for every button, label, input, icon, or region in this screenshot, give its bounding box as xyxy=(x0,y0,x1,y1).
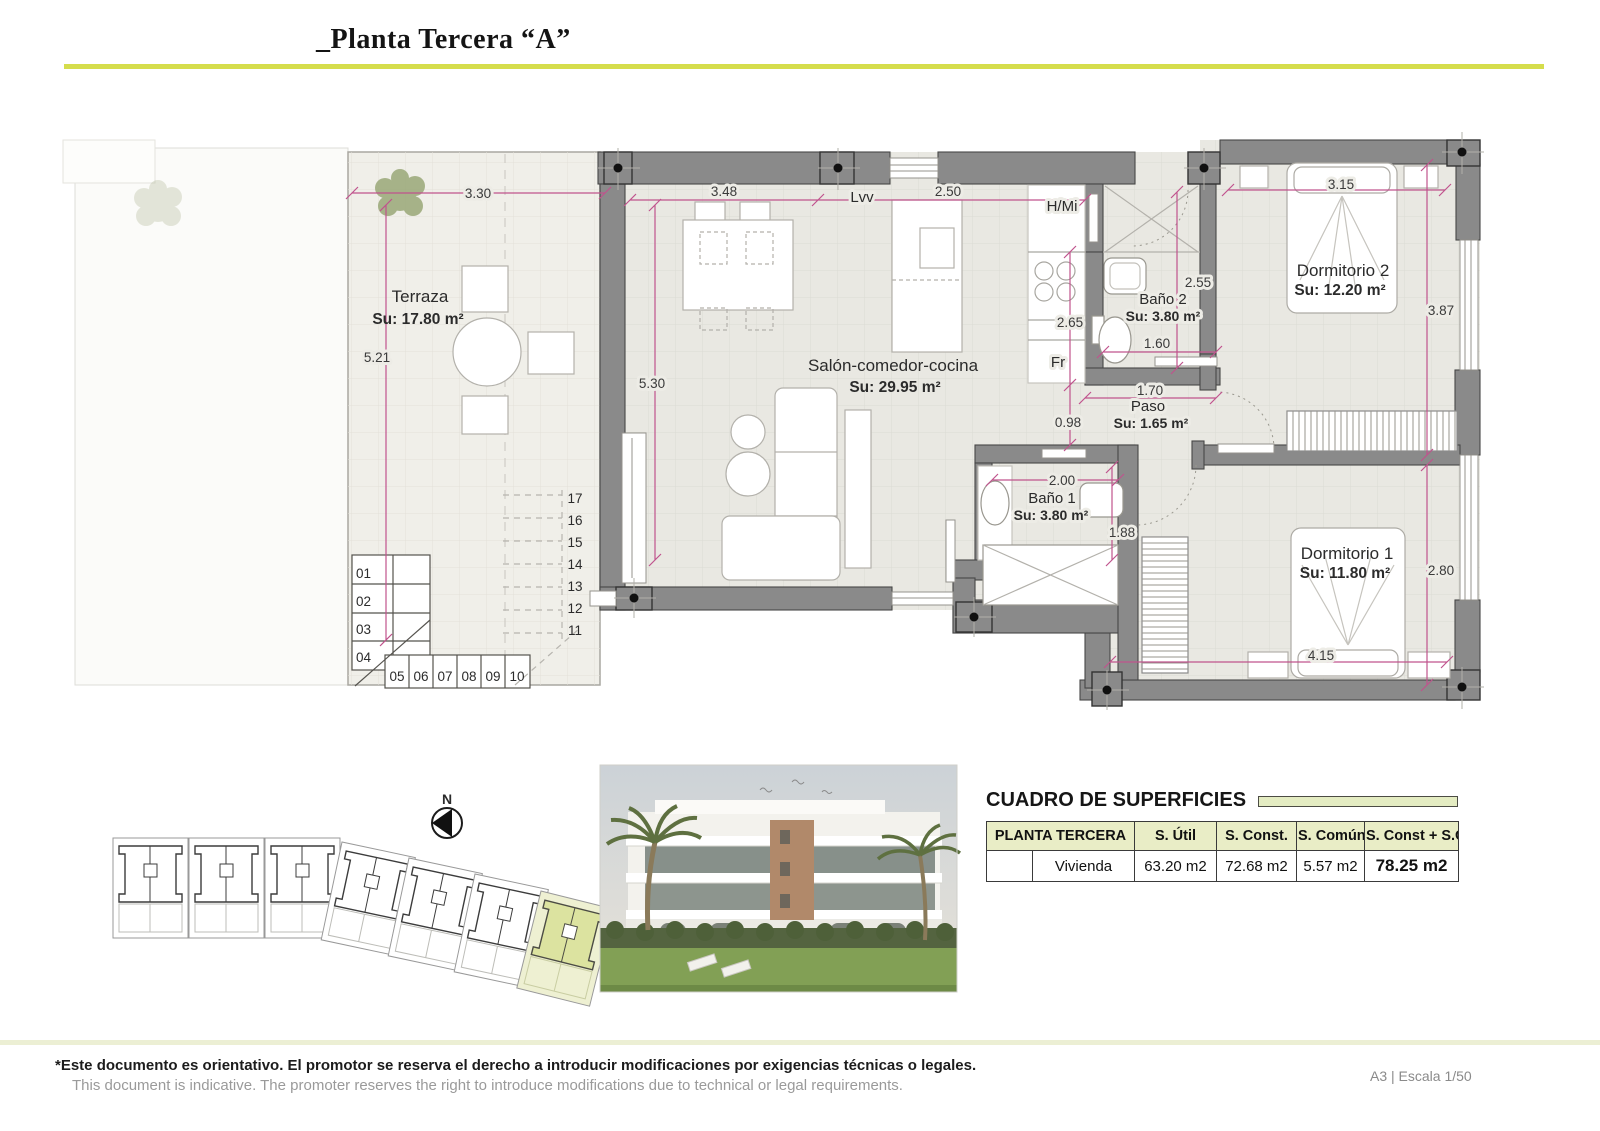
bano1-label: Baño 1 xyxy=(1028,490,1076,507)
empty-cell xyxy=(987,851,1033,882)
building-render-photo xyxy=(600,765,960,992)
stair-number: 01 xyxy=(356,566,371,581)
dorm2-area: Su: 12.20 m² xyxy=(1294,282,1385,299)
dim: 1.70 xyxy=(1137,383,1163,398)
col-header-comun: S. Común xyxy=(1297,822,1365,851)
dim: 1.60 xyxy=(1144,336,1170,351)
surfaces-panel: CUADRO DE SUPERFICIES PLANTA TERCERA S. … xyxy=(986,789,1458,882)
dim: 0.98 xyxy=(1055,415,1081,430)
dim: 5.21 xyxy=(364,350,390,365)
dim: 3.30 xyxy=(465,186,491,201)
stair-number: 14 xyxy=(567,557,583,572)
stair-number: 09 xyxy=(485,669,500,684)
dim: 5.30 xyxy=(639,376,665,391)
plan-sheet: _Planta Tercera “A” xyxy=(0,0,1600,1131)
terraza-label: Terraza xyxy=(392,287,449,306)
terraza-area: Su: 17.80 m² xyxy=(372,311,463,328)
fr-label: Fr xyxy=(1051,354,1065,371)
dim: 2.55 xyxy=(1185,275,1211,290)
disclaimer-en: This document is indicative. The promote… xyxy=(72,1077,903,1094)
stair-number: 16 xyxy=(567,513,582,528)
paso-area: Su: 1.65 m² xyxy=(1114,415,1189,431)
surfaces-table: PLANTA TERCERA S. Útil S. Const. S. Comú… xyxy=(986,821,1459,882)
dim: 3.15 xyxy=(1328,177,1354,192)
stair-number: 17 xyxy=(567,491,582,506)
col-header-util: S. Útil xyxy=(1135,822,1217,851)
dorm1-area: Su: 11.80 m² xyxy=(1300,565,1390,582)
surfaces-header-row: PLANTA TERCERA S. Útil S. Const. S. Comú… xyxy=(987,822,1459,851)
bano2-area: Su: 3.80 m² xyxy=(1126,308,1201,324)
site-unit xyxy=(113,838,188,938)
dim: 4.15 xyxy=(1308,648,1334,663)
floor-plan-drawing: Terraza Su: 17.80 m² Salón-comedor-cocin… xyxy=(0,0,1600,1131)
stair-number: 12 xyxy=(567,601,582,616)
surfaces-title-bar xyxy=(1258,796,1458,807)
comun-value: 5.57 m2 xyxy=(1297,851,1365,882)
disclaimer-es: *Este documento es orientativo. El promo… xyxy=(55,1057,976,1074)
paso-label: Paso xyxy=(1131,398,1165,415)
site-plan xyxy=(113,838,614,1006)
stair-number: 10 xyxy=(509,669,524,684)
dim: 2.00 xyxy=(1049,473,1075,488)
stair-number: 11 xyxy=(568,623,582,638)
row-label: Vivienda xyxy=(1033,851,1135,882)
dim: 3.87 xyxy=(1428,303,1454,318)
stair-number: 06 xyxy=(413,669,428,684)
salon-area: Su: 29.95 m² xyxy=(849,379,940,396)
const-value: 72.68 m2 xyxy=(1217,851,1297,882)
dim: 2.50 xyxy=(935,184,961,199)
dim: 2.65 xyxy=(1057,315,1083,330)
dim: 3.48 xyxy=(711,184,737,199)
col-header-total: S. Const + S.C xyxy=(1365,822,1459,851)
hmi-label: H/Mi xyxy=(1047,198,1078,215)
util-value: 63.20 m2 xyxy=(1135,851,1217,882)
bano1-area: Su: 3.80 m² xyxy=(1014,507,1089,523)
north-label: N xyxy=(442,791,452,807)
total-value: 78.25 m2 xyxy=(1365,851,1459,882)
lvv-label: Lvv xyxy=(850,189,874,206)
stair-number: 13 xyxy=(567,579,582,594)
table-row: Vivienda 63.20 m2 72.68 m2 5.57 m2 78.25… xyxy=(987,851,1459,882)
col-header-const: S. Const. xyxy=(1217,822,1297,851)
dim: 2.80 xyxy=(1428,563,1454,578)
footer-rule xyxy=(0,1040,1600,1045)
stair-number: 04 xyxy=(356,650,372,665)
sheet-scale: A3 | Escala 1/50 xyxy=(1370,1068,1472,1084)
dorm2-label: Dormitorio 2 xyxy=(1297,261,1390,280)
north-arrow-icon: N xyxy=(432,791,462,838)
surfaces-title: CUADRO DE SUPERFICIES xyxy=(986,789,1246,812)
stair-number: 05 xyxy=(389,669,404,684)
stair-number: 02 xyxy=(356,594,371,609)
col-header-planta: PLANTA TERCERA xyxy=(987,822,1135,851)
salon-label: Salón-comedor-cocina xyxy=(808,356,979,375)
site-unit xyxy=(189,838,264,938)
dim: 1.88 xyxy=(1109,525,1135,540)
stair-number: 03 xyxy=(356,622,371,637)
bano2-label: Baño 2 xyxy=(1139,291,1187,308)
dorm1-label: Dormitorio 1 xyxy=(1301,544,1394,563)
stair-number: 15 xyxy=(567,535,582,550)
stair-number: 07 xyxy=(437,669,452,684)
stair-number: 08 xyxy=(461,669,476,684)
